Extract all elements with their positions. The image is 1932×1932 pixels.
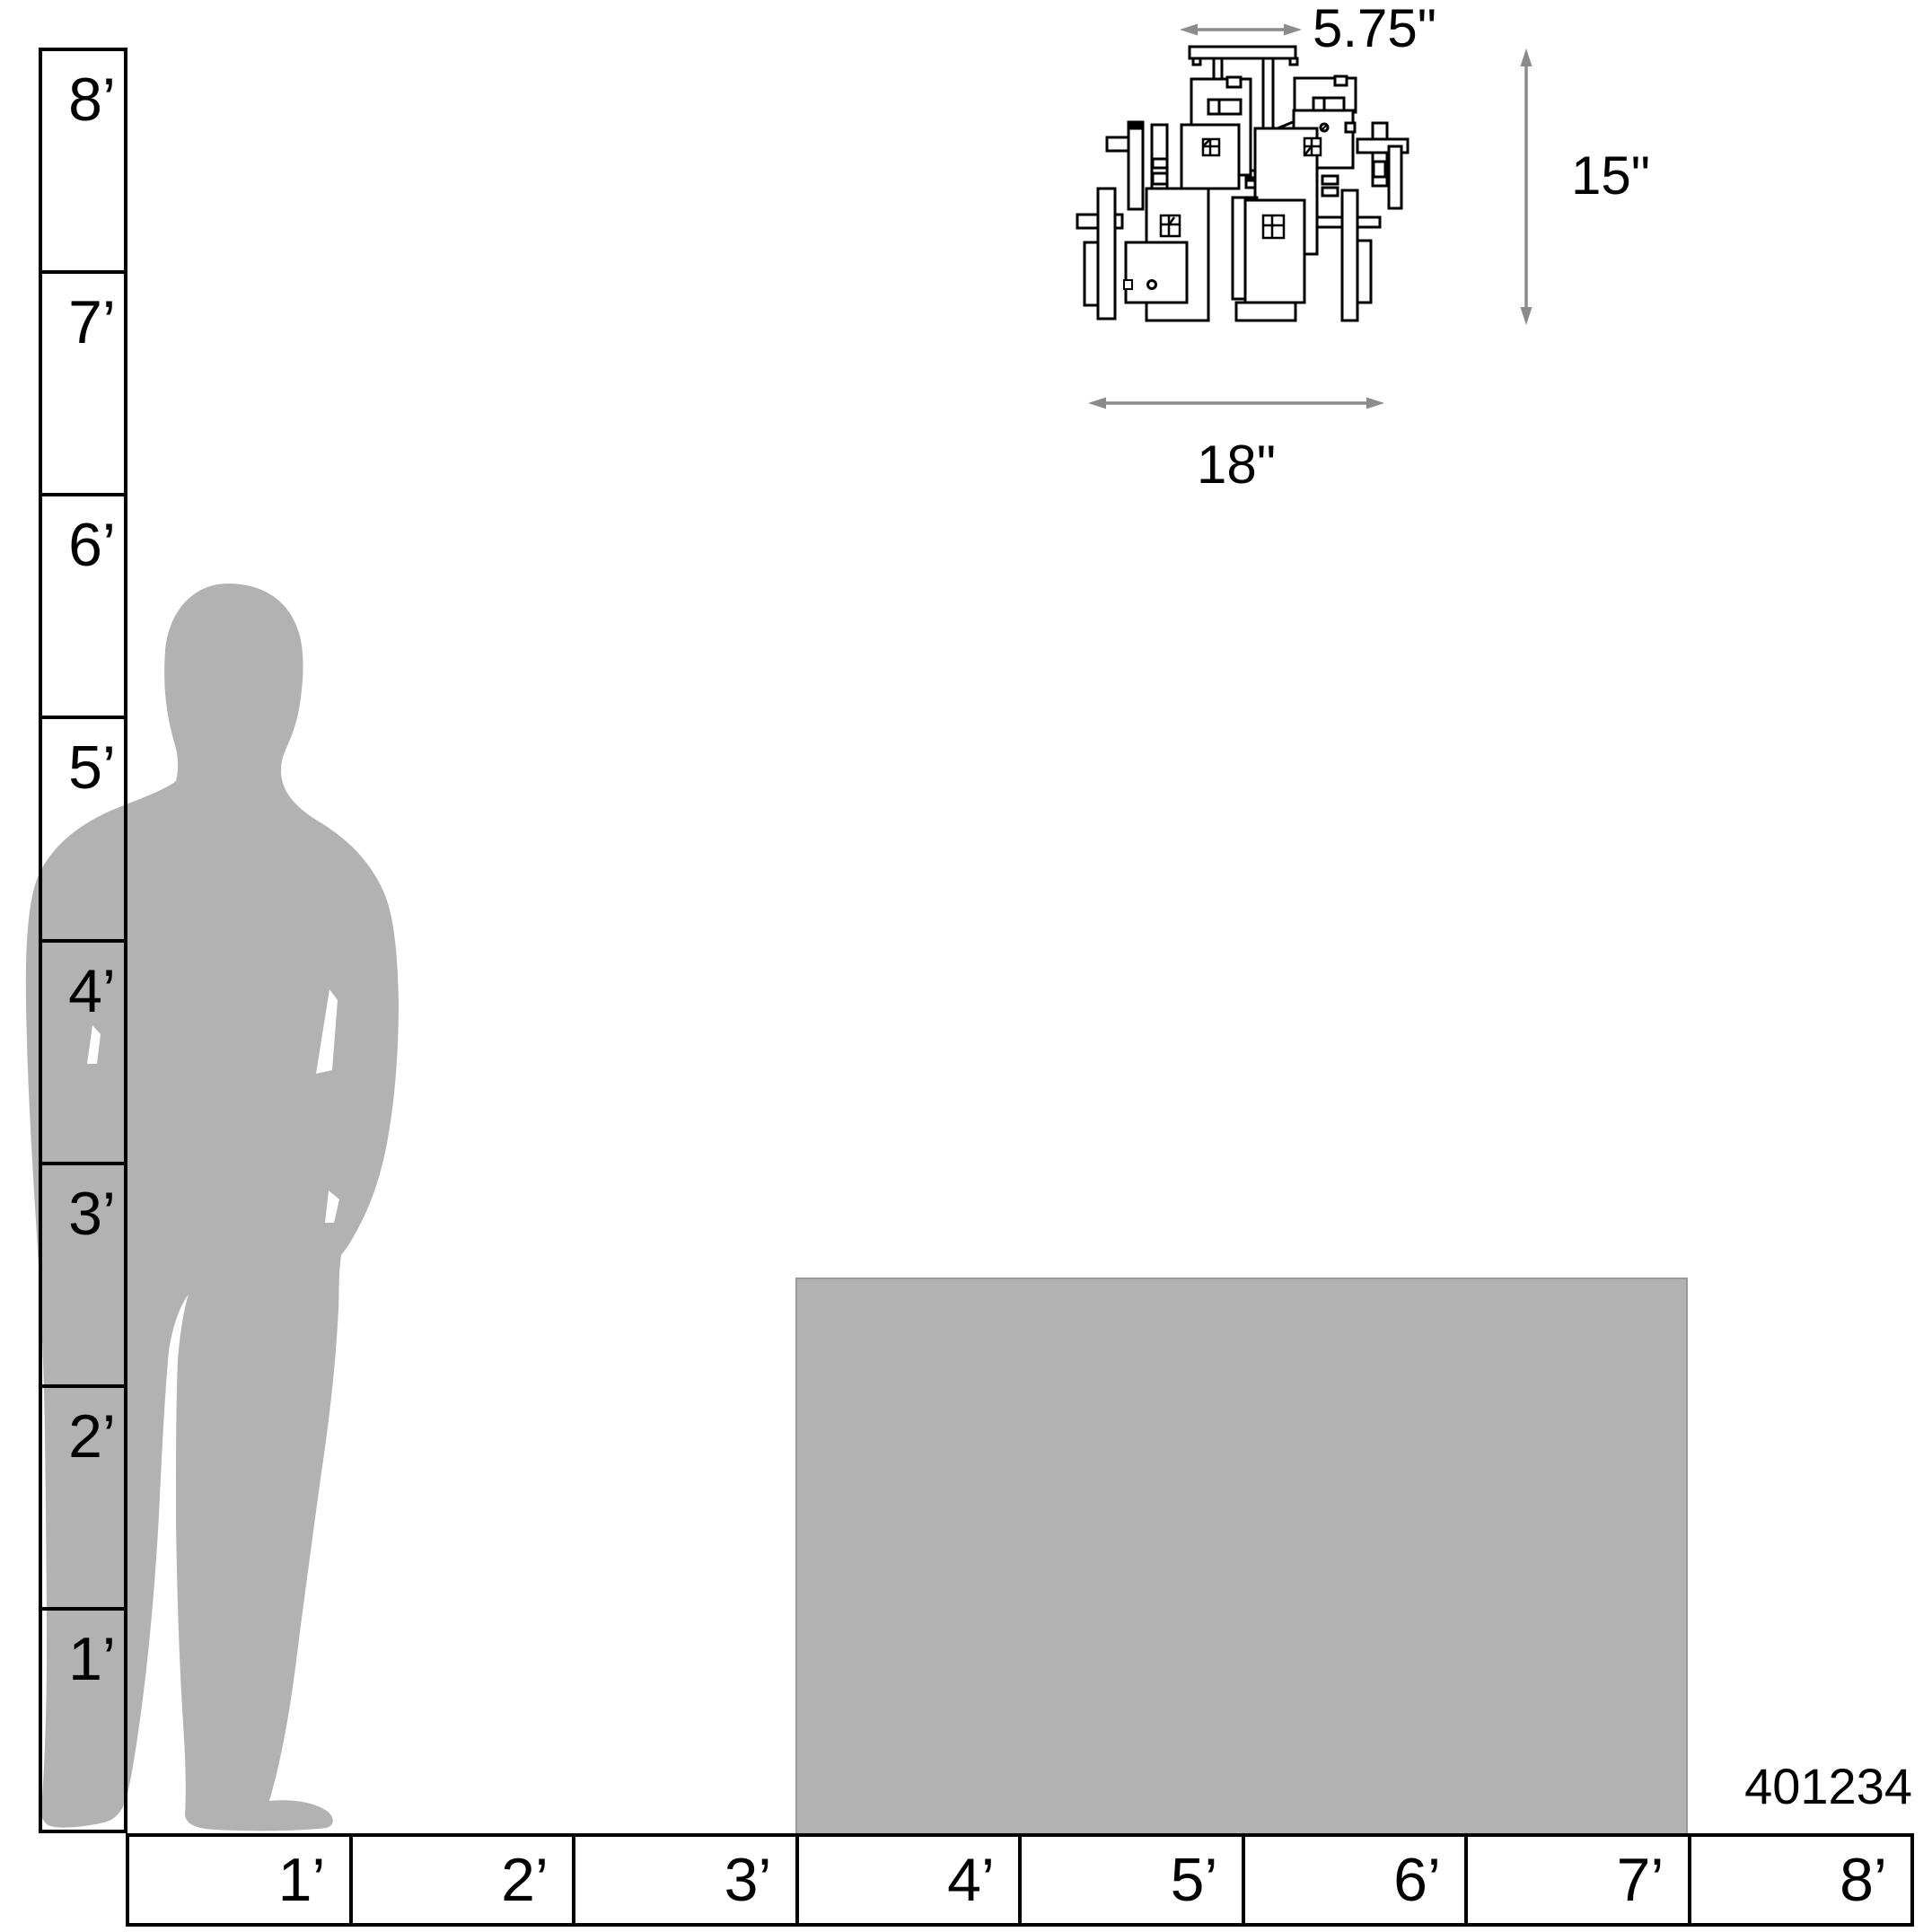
hruler-label-4ft: 4’: [795, 1837, 1019, 1923]
hruler-label-2ft: 2’: [349, 1837, 573, 1923]
canopy-width-arrow: [1178, 20, 1304, 40]
part-number: 401234: [1643, 1761, 1912, 1812]
hruler-label-1ft: 1’: [129, 1837, 349, 1923]
width-arrow: [1086, 393, 1386, 413]
horizontal-ruler: 1’ 2’ 3’ 4’ 5’ 6’ 7’ 8’: [126, 1833, 1914, 1927]
fixture-canopy: [1190, 47, 1295, 58]
vruler-label-1ft: 1’: [42, 1607, 124, 1830]
vruler-label-8ft: 8’: [42, 51, 124, 270]
dimension-diagram: 8’ 7’ 6’ 5’ 4’ 3’ 2’ 1’ 1’ 2’ 3’ 4’ 5’ 6…: [0, 0, 1932, 1932]
hruler-label-8ft: 8’: [1688, 1837, 1911, 1923]
canopy-width-label: 5.75": [1313, 2, 1436, 56]
vruler-label-5ft: 5’: [42, 716, 124, 938]
fixture-screw-panel: [1126, 242, 1187, 303]
hruler-label-5ft: 5’: [1018, 1837, 1242, 1923]
height-arrow: [1516, 47, 1536, 327]
vruler-label-6ft: 6’: [42, 493, 124, 716]
reference-box: [795, 1278, 1688, 1835]
vruler-label-3ft: 3’: [42, 1162, 124, 1384]
hruler-label-6ft: 6’: [1242, 1837, 1465, 1923]
width-label: 18": [1146, 438, 1326, 492]
fixture-drawing: [1068, 36, 1427, 341]
fixture-stem-right: [1263, 58, 1273, 128]
height-label: 15": [1571, 149, 1650, 203]
vruler-label-4ft: 4’: [42, 939, 124, 1162]
hruler-label-3ft: 3’: [572, 1837, 795, 1923]
hruler-label-7ft: 7’: [1464, 1837, 1688, 1923]
vruler-label-7ft: 7’: [42, 270, 124, 493]
vruler-label-2ft: 2’: [42, 1384, 124, 1607]
vertical-ruler: 8’ 7’ 6’ 5’ 4’ 3’ 2’ 1’: [39, 48, 127, 1833]
